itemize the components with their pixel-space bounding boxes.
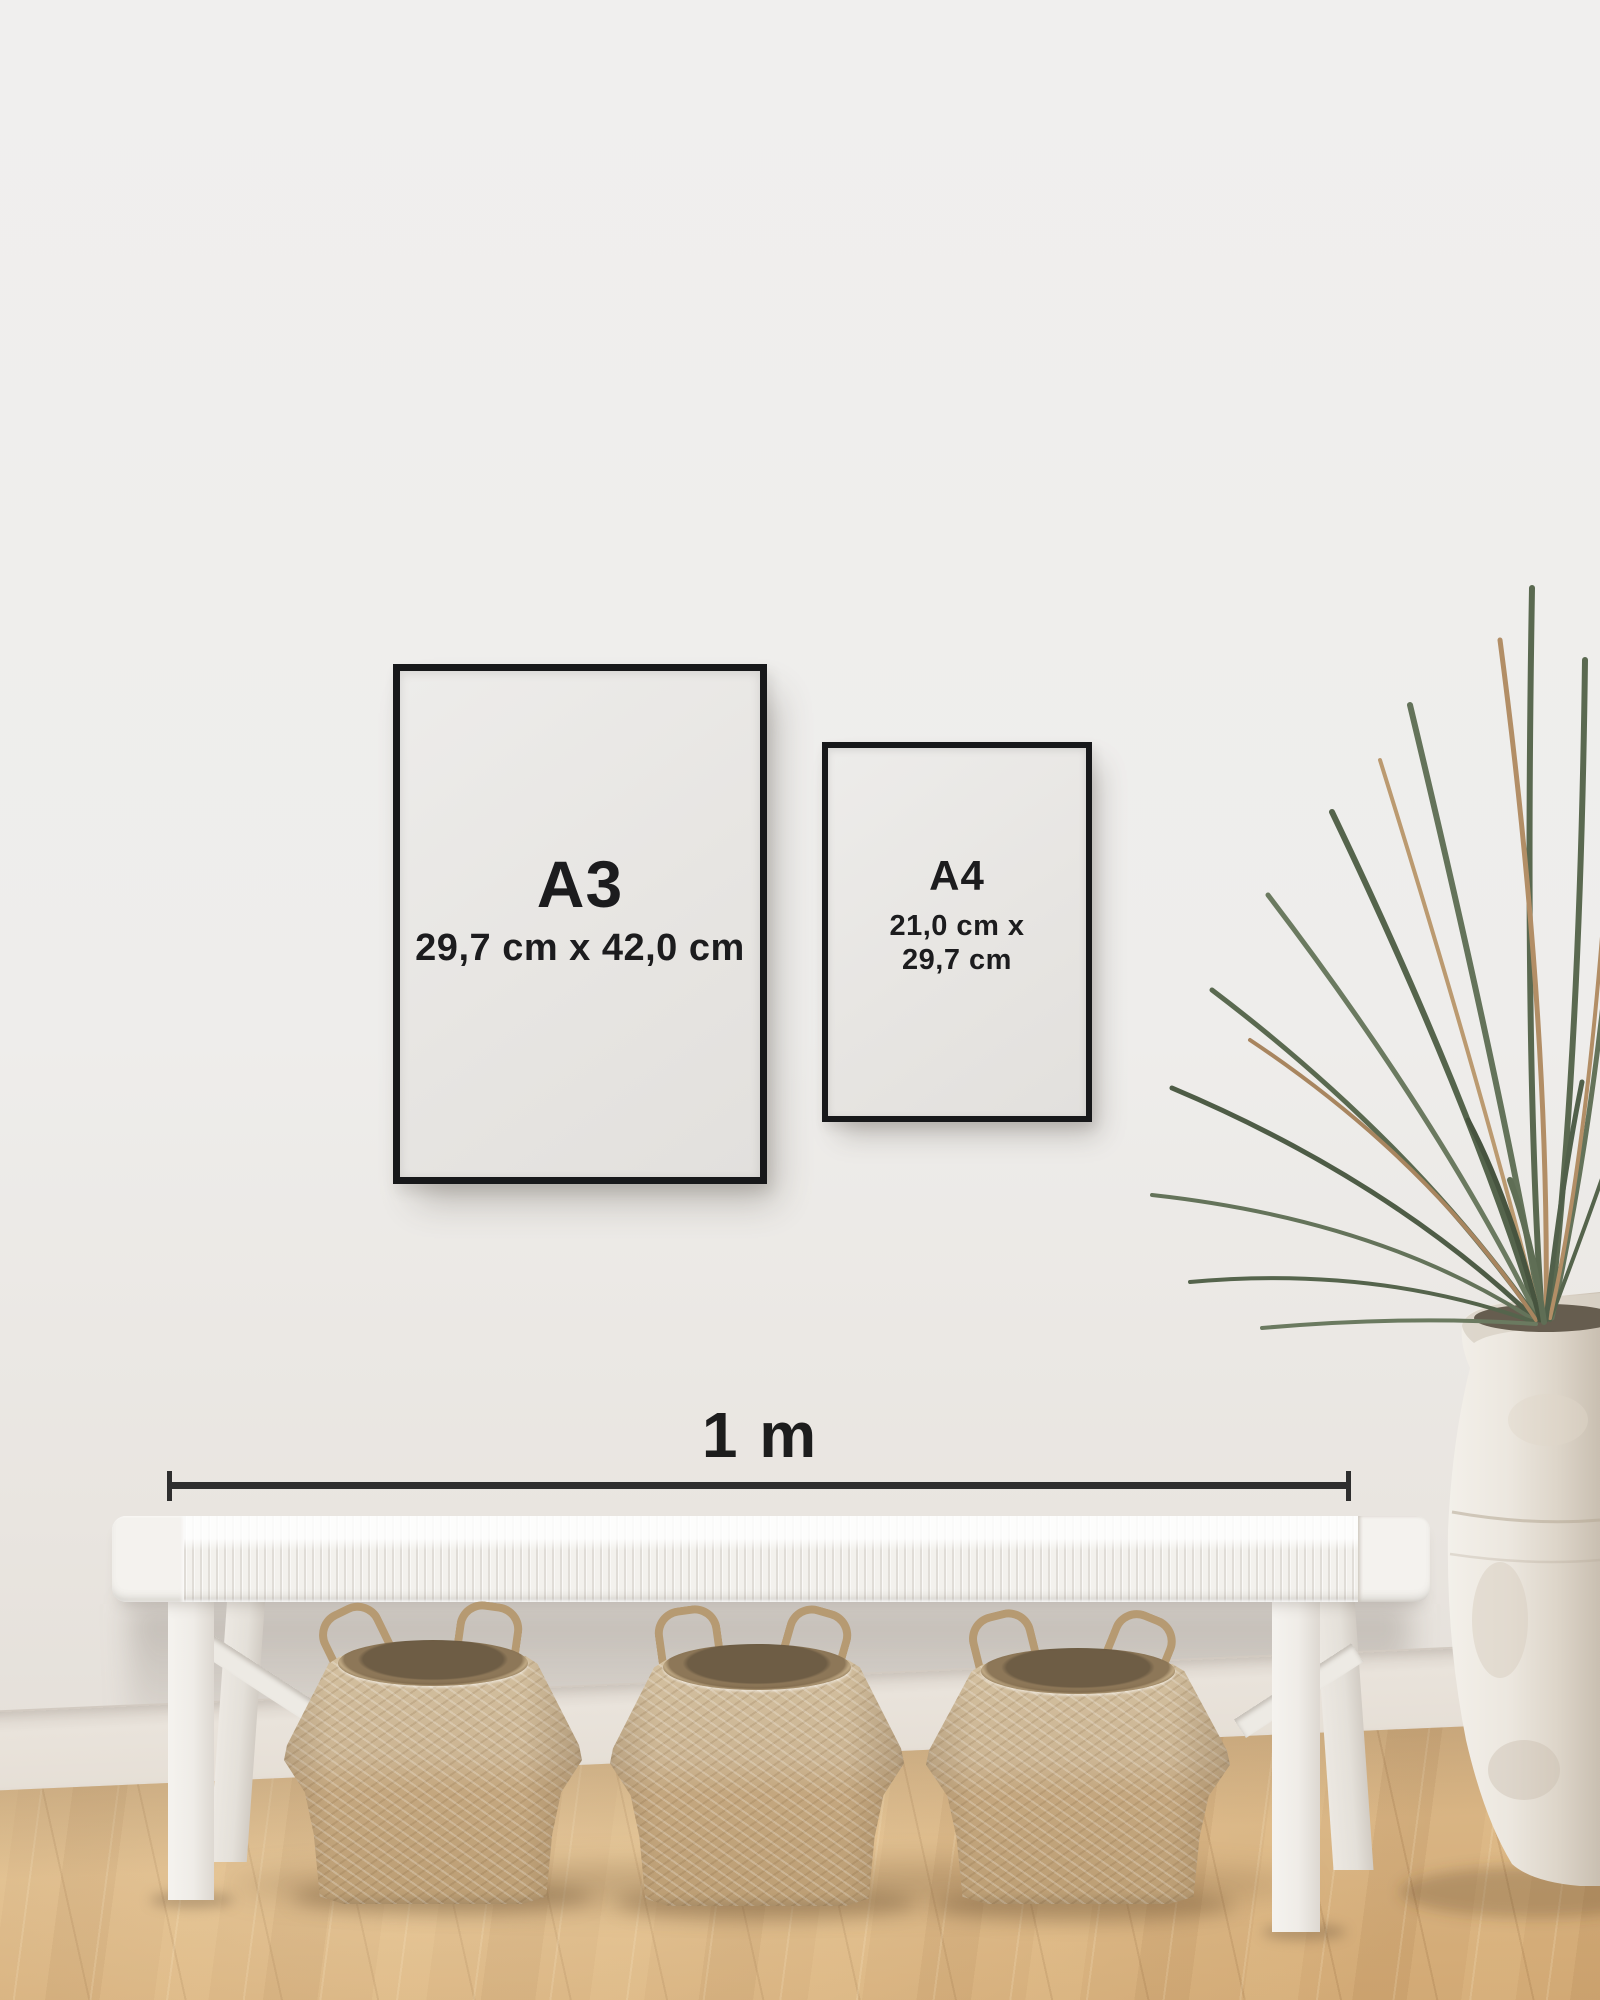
vase-texture xyxy=(1472,1562,1528,1678)
frame-a3-dimensions: 29,7 cm x 42,0 cm xyxy=(415,927,745,970)
frame-a3: A3 29,7 cm x 42,0 cm xyxy=(393,664,767,1184)
basket-left xyxy=(284,1656,582,1904)
frame-a3-size-label: A3 xyxy=(537,851,623,917)
basket-body xyxy=(284,1656,582,1904)
frame-a4-dimensions-line1: 21,0 cm x xyxy=(889,909,1024,943)
basket-middle xyxy=(610,1660,904,1906)
frame-a4-size-label: A4 xyxy=(929,855,985,897)
basket-rim xyxy=(663,1644,851,1690)
poster-size-mockup-scene: A3 29,7 cm x 42,0 cm A4 21,0 cm x 29,7 c… xyxy=(0,0,1600,2000)
scale-tick-left xyxy=(167,1471,172,1501)
frame-a4: A4 21,0 cm x 29,7 cm xyxy=(822,742,1092,1122)
vase-texture xyxy=(1488,1740,1560,1800)
frame-a3-paper: A3 29,7 cm x 42,0 cm xyxy=(415,851,745,970)
bench-seat-end-left xyxy=(112,1516,184,1602)
scale-label: 1 m xyxy=(610,1398,910,1472)
basket-body xyxy=(610,1660,904,1906)
frame-a4-paper: A4 21,0 cm x 29,7 cm xyxy=(889,855,1024,977)
frame-a4-dimensions-line2: 29,7 cm xyxy=(889,943,1024,977)
potted-palm-plant xyxy=(1080,420,1600,1980)
bench-leg-front-left xyxy=(168,1598,214,1900)
palm-fronds xyxy=(1152,588,1600,1328)
vase-texture xyxy=(1508,1394,1588,1446)
basket-rim xyxy=(338,1640,529,1686)
frame-a4-dimensions: 21,0 cm x 29,7 cm xyxy=(889,909,1024,977)
